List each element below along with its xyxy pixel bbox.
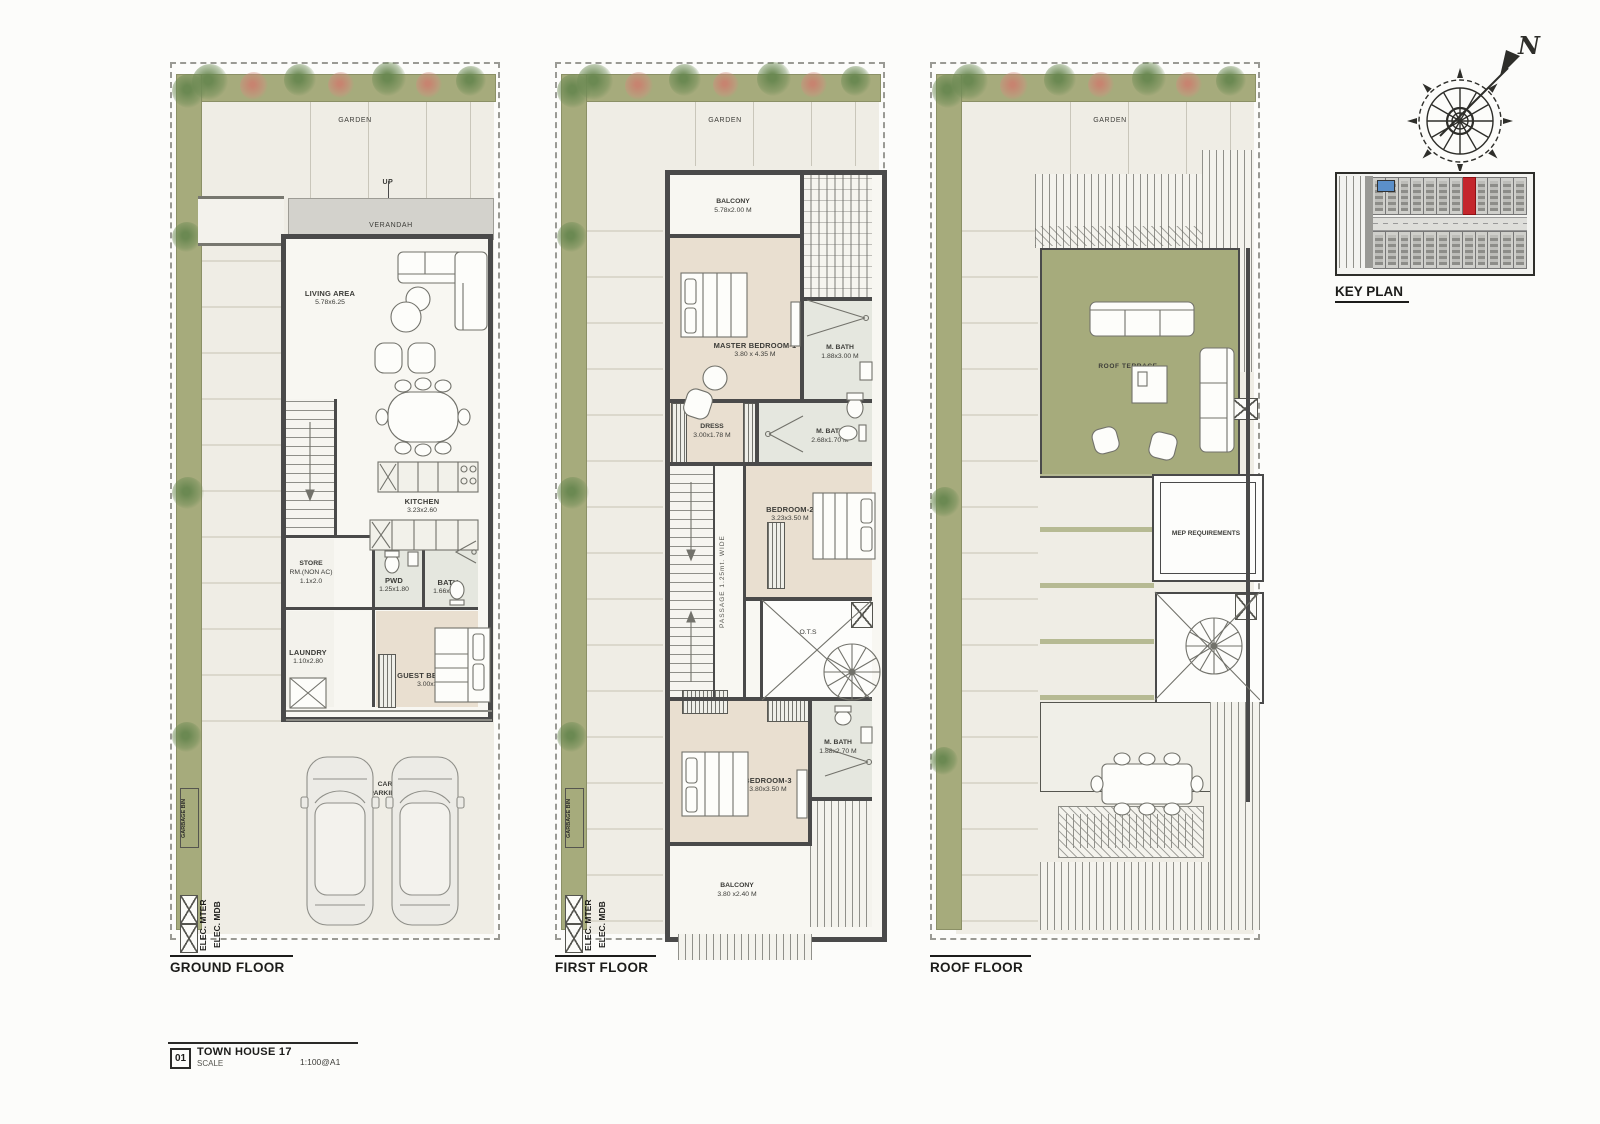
key-plan-unit	[1411, 177, 1424, 215]
polygon-el	[306, 490, 314, 500]
ellipse-el	[1139, 803, 1155, 815]
ellipse-el	[835, 711, 851, 725]
mbath1-fixtures	[807, 300, 872, 418]
key-plan-row-bottom	[1373, 231, 1527, 269]
key-plan-unit	[1399, 231, 1412, 269]
stairs-arrow	[306, 422, 314, 500]
ellipse-el	[395, 380, 411, 392]
ellipse-el	[839, 426, 857, 440]
rect-el	[408, 552, 418, 566]
polygon-el	[1500, 50, 1520, 76]
drawing-title: TOWN HOUSE 17	[197, 1046, 292, 1058]
key-plan-unit	[1450, 231, 1463, 269]
laundry-machine	[290, 678, 326, 708]
line-el	[1440, 68, 1508, 136]
compass-rose-icon: N	[1398, 26, 1548, 171]
bedroom3-bed	[682, 752, 748, 816]
ellipse-el	[385, 555, 399, 573]
rect-el	[685, 308, 696, 333]
car-1	[301, 757, 379, 925]
i-el	[1439, 181, 1447, 211]
dining-set	[376, 378, 470, 456]
key-plan-entry	[1339, 176, 1367, 268]
polygon-el	[1457, 164, 1463, 171]
key-plan-spine	[1365, 176, 1373, 268]
i-el	[1452, 235, 1460, 265]
i-el	[1413, 235, 1421, 265]
rect-el	[1132, 366, 1167, 403]
rect-el	[1090, 302, 1194, 336]
furniture-ground	[170, 62, 500, 940]
rect-el	[861, 727, 872, 743]
rect-el	[385, 551, 399, 557]
ellipse-el	[458, 409, 470, 425]
i-el	[1401, 181, 1409, 211]
rect-el	[1138, 372, 1147, 386]
scale-value: 1:100@A1	[300, 1057, 340, 1067]
key-plan-unit	[1411, 231, 1424, 269]
car-2	[386, 757, 464, 925]
ground-floor-plan: GARDEN VERANDAH UP LIVING AREA5.78x6.25 …	[170, 62, 500, 940]
g-el	[1407, 50, 1520, 171]
scale-label: SCALE	[197, 1059, 223, 1068]
i-el	[1426, 235, 1434, 265]
i-el	[1478, 181, 1486, 211]
rect-el	[450, 600, 464, 605]
key-plan-unit	[1386, 231, 1399, 269]
key-plan-unit	[1514, 231, 1527, 269]
i-el	[1388, 235, 1396, 265]
ellipse-el	[435, 442, 451, 454]
rect-el	[388, 392, 458, 442]
i-el	[1373, 223, 1527, 224]
i-el	[1490, 181, 1498, 211]
desk	[797, 770, 807, 818]
key-plan-unit	[1373, 231, 1386, 269]
roof-dining-set	[1091, 753, 1203, 815]
rect-el	[473, 634, 484, 660]
guest-bed	[435, 628, 490, 702]
title-block-rule	[168, 1042, 358, 1044]
ellipse-el	[1114, 753, 1130, 765]
key-plan-row-top	[1373, 177, 1527, 215]
bedroom2-bed	[813, 493, 875, 559]
key-plan-unit	[1501, 177, 1514, 215]
rect-el	[375, 343, 402, 373]
i-el	[1375, 235, 1383, 265]
key-plan-road	[1373, 217, 1527, 231]
rect-el	[686, 787, 697, 812]
stairs-arrows	[687, 482, 695, 682]
i-el	[1465, 235, 1473, 265]
i-el	[1516, 181, 1524, 211]
rect-el	[1102, 764, 1192, 804]
polygon-el	[1407, 118, 1417, 124]
spiral-stair	[824, 644, 880, 700]
key-plan-unit	[1488, 231, 1501, 269]
path-el	[769, 416, 803, 452]
roof-floor-plan: GARDEN ROOF TERRACE MEP REQUIREMENTS ROO…	[930, 62, 1260, 940]
key-plan-unit	[1450, 177, 1463, 215]
key-plan-unit	[1424, 231, 1437, 269]
rect-el	[1090, 425, 1121, 456]
master-bed	[681, 273, 747, 337]
polygon-el	[1420, 149, 1431, 160]
rect-el	[1147, 430, 1179, 462]
key-plan-unit	[1476, 177, 1489, 215]
circle-el	[391, 302, 421, 332]
rect-el	[455, 252, 487, 330]
tv-unit	[791, 302, 800, 346]
mbath2-fixtures	[766, 416, 867, 452]
first-floor-title: FIRST FLOOR	[555, 955, 656, 975]
ellipse-el	[1091, 776, 1103, 792]
pouf	[703, 366, 727, 390]
furniture-first	[555, 62, 885, 940]
ellipse-el	[450, 581, 464, 599]
armchair	[681, 387, 714, 422]
rect-el	[860, 362, 872, 380]
ellipse-el	[415, 444, 431, 456]
polygon-el	[687, 612, 695, 622]
sofa-set	[375, 252, 487, 373]
north-letter: N	[1517, 31, 1541, 60]
i-el	[1465, 181, 1473, 211]
roof-floor-title: ROOF FLOOR	[930, 955, 1031, 975]
path-el	[807, 300, 865, 336]
key-plan-unit	[1476, 231, 1489, 269]
i-el	[1516, 235, 1524, 265]
i-el	[1452, 181, 1460, 211]
mbath3-fixtures	[825, 706, 872, 776]
key-plan-pool	[1377, 180, 1395, 192]
i-el	[1503, 235, 1511, 265]
rect-el	[473, 664, 484, 690]
kitchen-counter	[370, 462, 478, 550]
key-plan-unit	[1488, 177, 1501, 215]
ellipse-el	[395, 442, 411, 454]
path-el	[825, 748, 868, 776]
i-el	[1478, 235, 1486, 265]
terrace-sofas	[1090, 302, 1234, 462]
rect-el	[685, 279, 696, 304]
rect-el	[861, 527, 872, 551]
key-plan-unit-highlighted	[1463, 177, 1476, 215]
furniture-roof	[930, 62, 1260, 940]
rect-el	[859, 425, 866, 441]
i-el	[1439, 235, 1447, 265]
i-el	[1426, 181, 1434, 211]
polygon-el	[1503, 118, 1513, 124]
rect-el	[847, 393, 863, 400]
ots-cross	[762, 600, 872, 700]
ground-floor-title: GROUND FLOOR	[170, 955, 293, 975]
ellipse-el	[376, 409, 388, 425]
drawing-number: 01	[170, 1048, 191, 1069]
i-el	[1401, 235, 1409, 265]
polygon-el	[1488, 149, 1499, 160]
polygon-el	[1420, 81, 1431, 92]
i-el	[1503, 181, 1511, 211]
ellipse-el	[435, 380, 451, 392]
spiral-stair	[1186, 618, 1242, 674]
key-plan-unit	[1501, 231, 1514, 269]
rect-el	[1200, 348, 1234, 452]
key-plan-unit	[1437, 177, 1450, 215]
key-plan-unit	[1437, 231, 1450, 269]
key-plan-unit	[1463, 231, 1476, 269]
rect-el	[370, 520, 478, 550]
ellipse-el	[1139, 753, 1155, 765]
polygon-el	[1457, 68, 1463, 78]
rect-el	[686, 758, 697, 783]
bath-fixtures	[385, 541, 476, 605]
key-plan-unit	[1514, 177, 1527, 215]
g-el	[1407, 68, 1513, 171]
key-plan	[1335, 172, 1535, 276]
key-plan-title: KEY PLAN	[1335, 284, 1409, 303]
rect-el	[861, 499, 872, 523]
ellipse-el	[1164, 753, 1180, 765]
rect-el	[408, 343, 435, 373]
ellipse-el	[1114, 803, 1130, 815]
i-el	[1413, 181, 1421, 211]
key-plan-unit	[1399, 177, 1412, 215]
key-plan-unit	[1424, 177, 1437, 215]
rect-el	[835, 706, 851, 712]
drawing-sheet: GARDEN VERANDAH UP LIVING AREA5.78x6.25 …	[0, 0, 1600, 1124]
ellipse-el	[415, 378, 431, 390]
ellipse-el	[1191, 776, 1203, 792]
i-el	[1490, 235, 1498, 265]
polygon-el	[687, 550, 695, 560]
first-floor-plan: GARDEN BALCONY5.78x2.00 M MASTER BEDROOM…	[555, 62, 885, 940]
ellipse-el	[1164, 803, 1180, 815]
ellipse-el	[847, 398, 863, 418]
